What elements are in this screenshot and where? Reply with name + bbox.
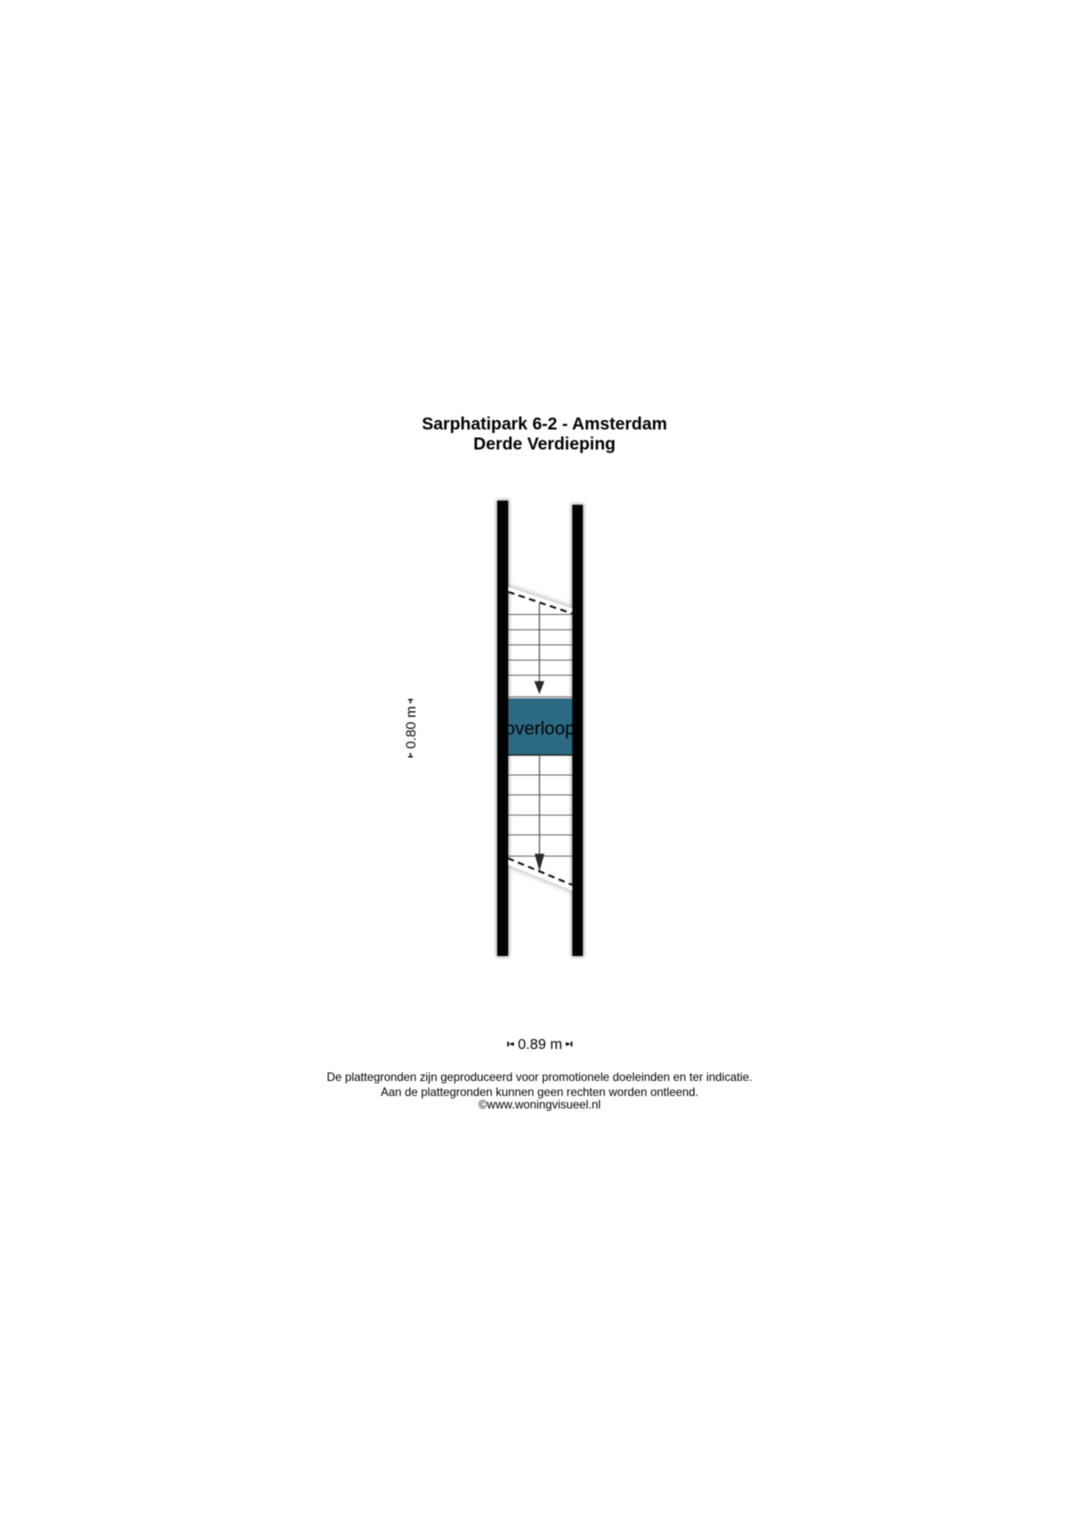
svg-text:0.80 m: 0.80 m xyxy=(403,706,419,749)
svg-text:©www.woningvisueel.nl: ©www.woningvisueel.nl xyxy=(478,1098,600,1111)
svg-text:De plattegronden zijn geproduc: De plattegronden zijn geproduceerd voor … xyxy=(327,1071,753,1084)
svg-text:Derde Verdieping: Derde Verdieping xyxy=(473,434,615,454)
svg-text:Sarphatipark 6-2 - Amsterdam: Sarphatipark 6-2 - Amsterdam xyxy=(422,414,667,434)
svg-text:0.89 m: 0.89 m xyxy=(518,1037,562,1053)
svg-text:Aan de plattegronden kunnen ge: Aan de plattegronden kunnen geen rechten… xyxy=(381,1086,699,1099)
svg-text:overloop: overloop xyxy=(505,718,575,739)
